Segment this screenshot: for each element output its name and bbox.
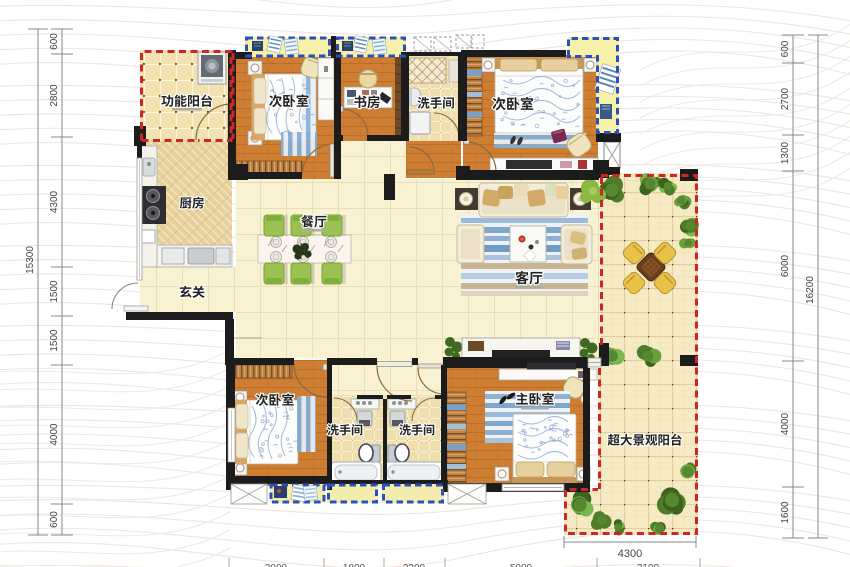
svg-text:3100: 3100 [637, 563, 660, 567]
svg-text:4300: 4300 [618, 548, 642, 560]
svg-text:2700: 2700 [780, 87, 791, 110]
svg-text:2800: 2800 [49, 84, 60, 107]
svg-text:4000: 4000 [49, 423, 60, 446]
svg-text:1500: 1500 [49, 280, 60, 303]
svg-text:6000: 6000 [780, 254, 791, 277]
svg-text:1500: 1500 [49, 329, 60, 352]
svg-text:600: 600 [49, 33, 60, 50]
svg-text:5000: 5000 [510, 563, 533, 567]
svg-text:1600: 1600 [780, 501, 791, 524]
svg-text:15300: 15300 [25, 246, 36, 274]
svg-text:3000: 3000 [265, 563, 288, 567]
svg-text:600: 600 [780, 40, 791, 57]
svg-text:1300: 1300 [780, 141, 791, 164]
svg-text:2200: 2200 [403, 563, 426, 567]
svg-text:4300: 4300 [49, 190, 60, 213]
svg-text:16200: 16200 [805, 276, 816, 304]
svg-text:600: 600 [49, 511, 60, 528]
svg-text:4000: 4000 [780, 412, 791, 435]
svg-text:1800: 1800 [343, 563, 366, 567]
